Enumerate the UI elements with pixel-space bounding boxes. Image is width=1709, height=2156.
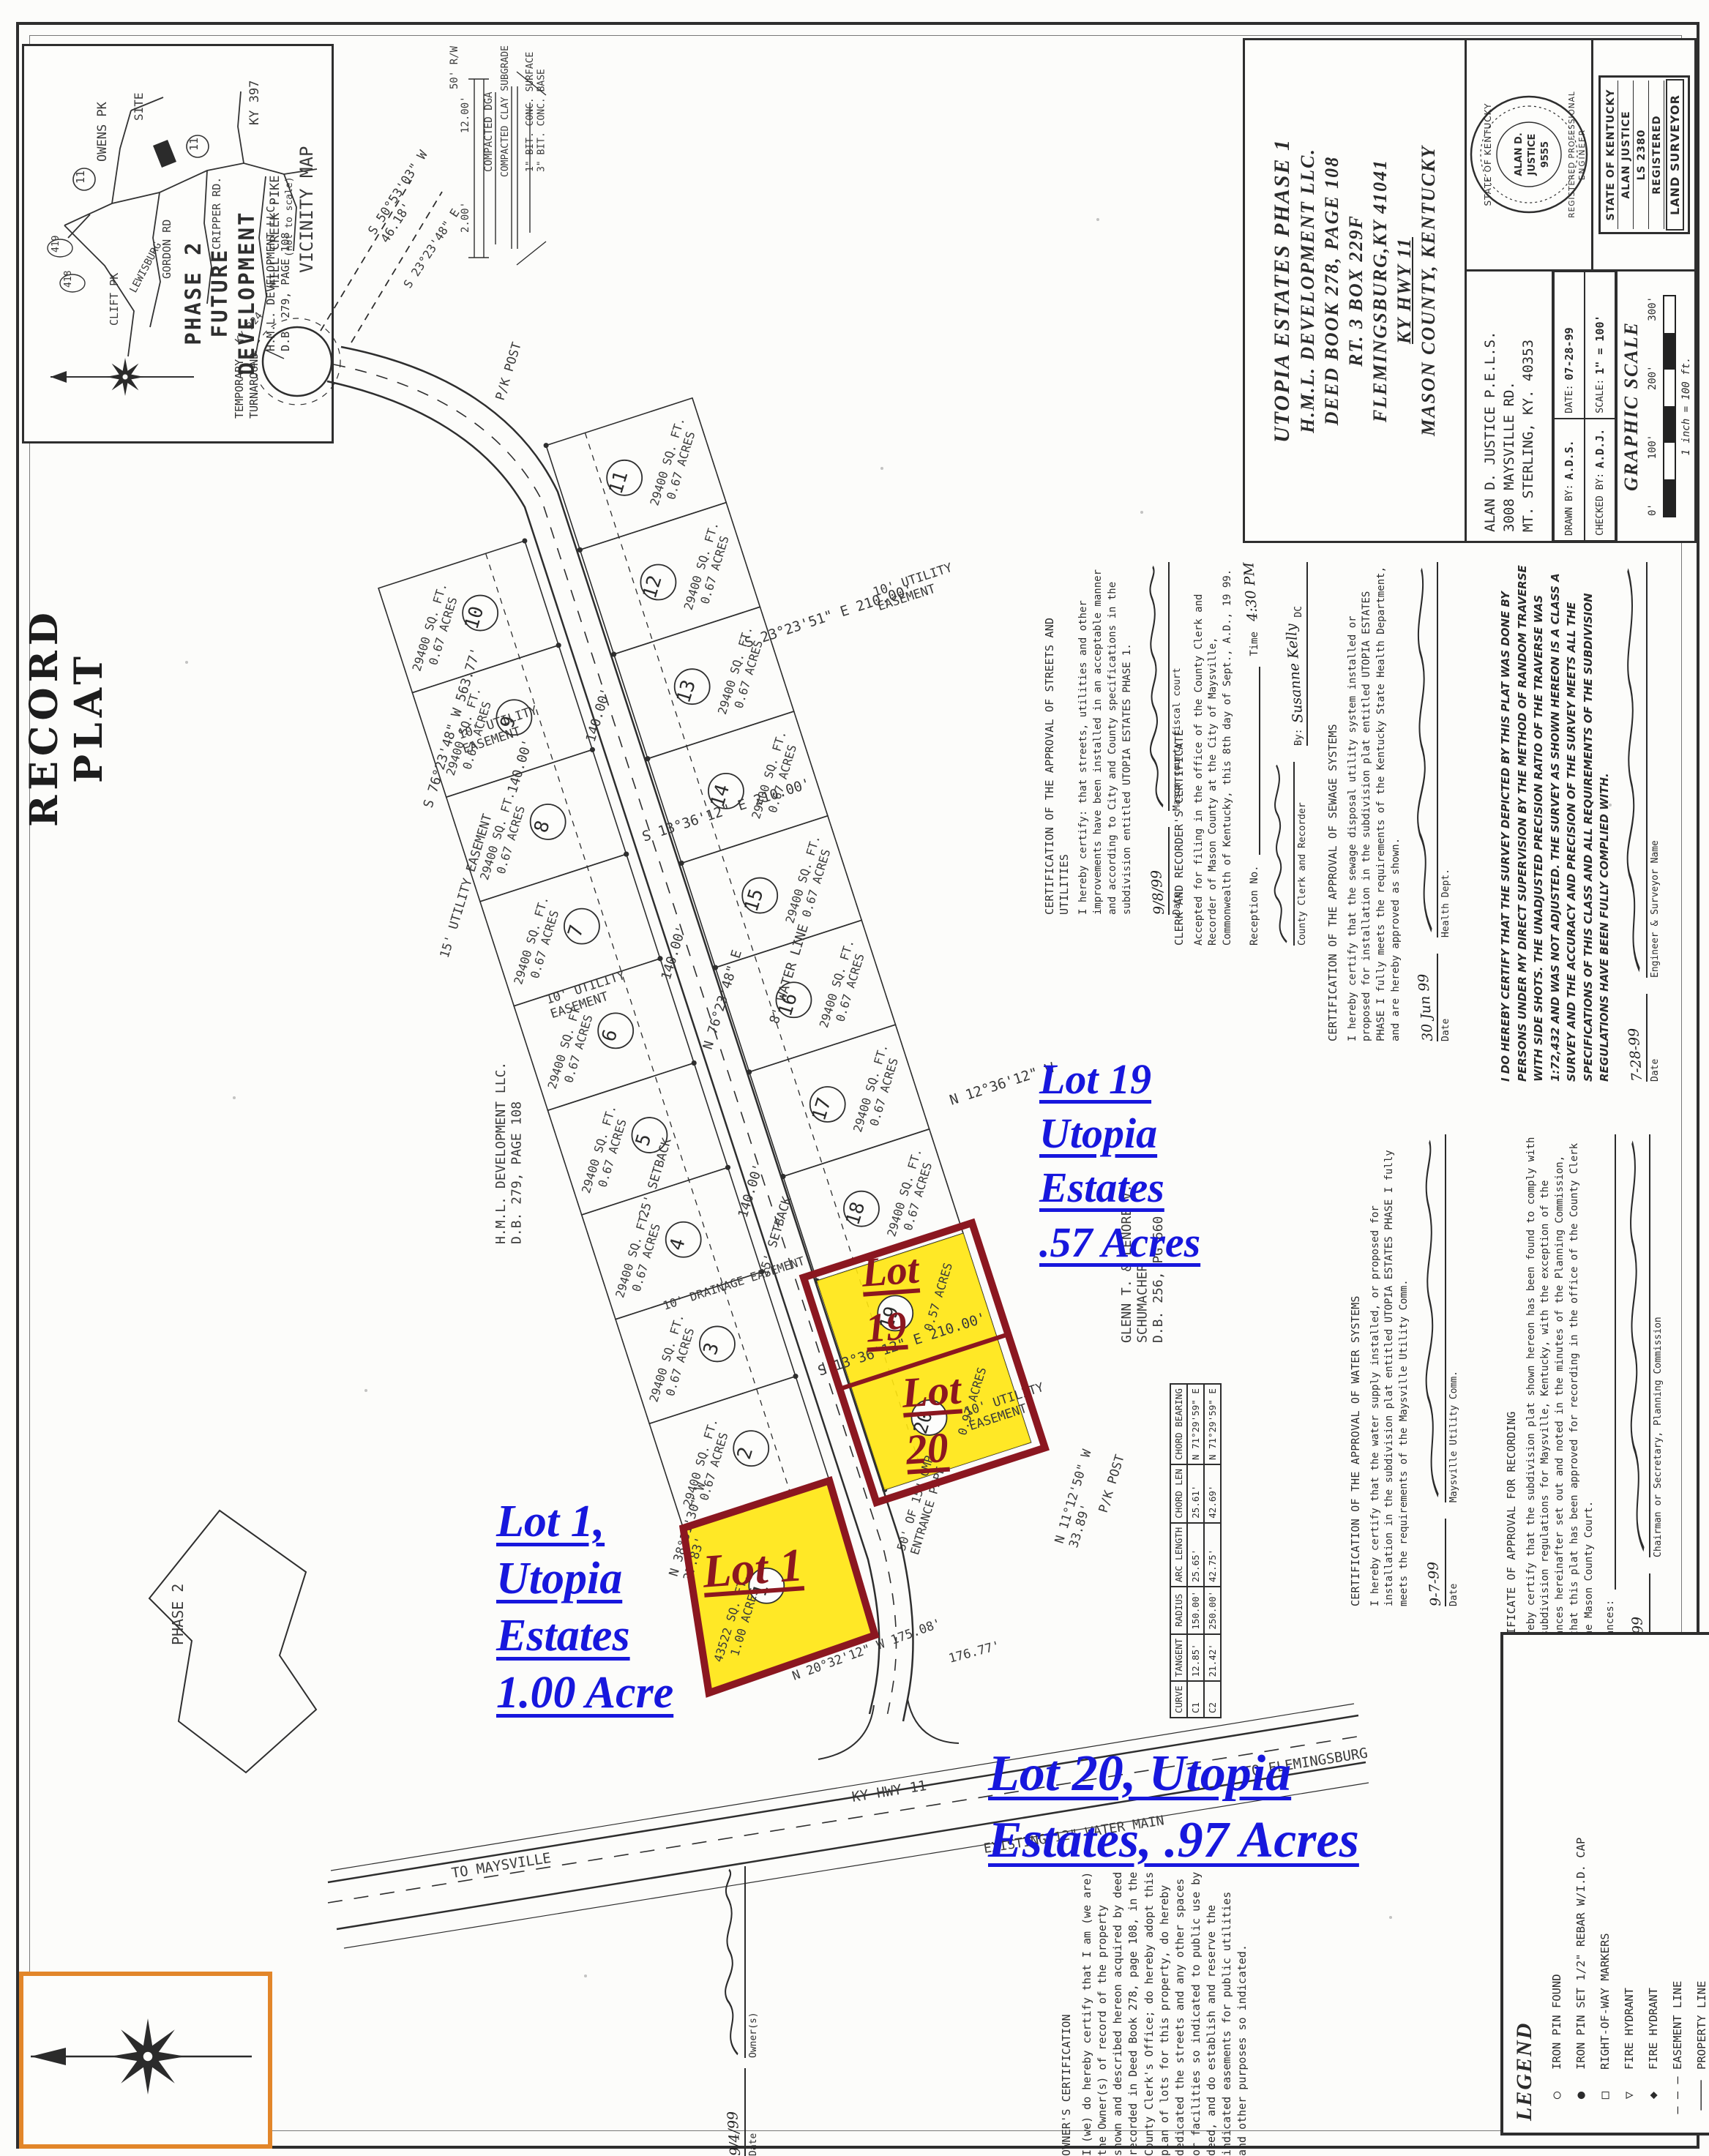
surveyor-stamp-line: LAND SURVEYOR: [1666, 79, 1684, 231]
legend-item: ▽FIRE HYDRANT: [1617, 1647, 1641, 2121]
legend-item: ◆FIRE HYDRANT: [1641, 1647, 1665, 2121]
cert-title: OWNER'S CERTIFICATION: [1060, 1866, 1074, 2156]
lot-area-label: 29400 SQ. FT.0.67 ACRES: [647, 416, 700, 512]
curve-table-cell: C2: [1204, 1681, 1221, 1718]
svg-text:ALAN D.: ALAN D.: [1514, 133, 1525, 177]
iron-pin-icon: [522, 539, 527, 544]
legend-label: IRON PIN SET 1/2" REBAR W/I.D. CAP: [1574, 1838, 1588, 2070]
graphic-scale-ticks: 0'100'200'300': [1647, 296, 1658, 516]
title-block-line: RT. 3 BOX 229F: [1345, 214, 1367, 367]
legend-items: ○IRON PIN FOUND●IRON PIN SET 1/2" REBAR …: [1544, 1647, 1709, 2121]
title-block-line: KY HWY 11: [1394, 237, 1416, 344]
signature-line: [1166, 562, 1170, 811]
graphic-scale-tick: 0': [1647, 504, 1658, 516]
compass-rose-icon: [23, 1976, 259, 2136]
signer-label: Chairman or Secretary, Planning Commissi…: [1653, 1134, 1664, 1557]
graphic-scale-bar: [1663, 295, 1676, 517]
surveyor-address-line: ALAN D. JUSTICE P.E.L.S.: [1482, 272, 1498, 532]
graphic-scale: GRAPHIC SCALE 0'100'200'300' 1 inch = 10…: [1618, 272, 1694, 541]
handwritten-signature: Susanne Kelly: [1283, 623, 1306, 723]
plat-annotation: 12.00': [460, 96, 471, 133]
iron-pin-icon: [713, 965, 718, 970]
curve-table-cell: N 71°29'59" E: [1187, 1384, 1204, 1464]
lot-area-label: 29400 SQ. FT.0.67 ACRES: [749, 729, 802, 825]
scan-speckle: [1140, 511, 1143, 514]
scan-speckle: [584, 1975, 587, 1977]
cert-recording: CERTIFICATE OF APPROVAL FOR RECORDING I …: [1505, 1134, 1697, 1661]
handwritten-time: 4:30 PM: [1241, 561, 1261, 621]
label-lot20: Lot 20: [900, 1360, 967, 1479]
svg-text:9555: 9555: [1540, 141, 1551, 168]
handwritten-date: 9/8/99: [1145, 826, 1167, 915]
lot-area-label: 29400 SQ. FT.0.67 ACRES: [681, 520, 735, 616]
plat-annotation: 10' UTILITYEASEMENT: [871, 561, 959, 614]
legend-title: LEGEND: [1512, 1647, 1537, 2121]
surveyor-stamp: STATE OF KENTUCKYALAN JUSTICELS 2380REGI…: [1593, 40, 1694, 269]
signature: [1421, 1134, 1443, 1502]
lot-area-label: 29400 SQ. FT.0.67 ACRES: [817, 937, 870, 1033]
signature-line: [1435, 562, 1438, 937]
date-label: Date: [1448, 1519, 1459, 1606]
svg-text:STATE OF KENTUCKY: STATE OF KENTUCKY: [1483, 103, 1493, 206]
cert-title: CERTIFICATION OF THE APPROVAL OF STREETS…: [1043, 562, 1072, 915]
cert-body: I hereby certify that the sewage disposa…: [1346, 562, 1405, 1041]
title-block-line: MASON COUNTY, KENTUCKY: [1418, 145, 1440, 436]
cert-title: CERTIFICATE OF APPROVAL FOR RECORDING: [1505, 1134, 1519, 1661]
handwritten-date: 9/4/99: [722, 2067, 744, 2156]
cert-surveyor: I DO HEREBY CERTIFY THAT THE SURVEY DEPI…: [1497, 562, 1697, 1082]
plat-annotation: 15' UTILITY EASEMENT: [438, 812, 496, 960]
surveyor-address: ALAN D. JUSTICE P.E.L.S.3008 MAYSVILLE R…: [1467, 272, 1554, 541]
engineer-seal-drawing: STATE OF KENTUCKY REGISTERED PROFESSIONA…: [1467, 45, 1590, 265]
lot-area-label: 29400 SQ. FT.0.67 ACRES: [884, 1147, 938, 1243]
compass-highlight-box: [19, 1972, 272, 2149]
svg-text:REGISTERED PROFESSIONAL: REGISTERED PROFESSIONAL: [1568, 91, 1577, 218]
legend-item: – – –EASEMENT LINE: [1665, 1647, 1689, 2121]
cert-title: CLERK AND RECORDER'S CERTIFICATE: [1173, 562, 1187, 946]
title-block-line: DEED BOOK 278, PAGE 108: [1321, 156, 1343, 425]
cert-body: I hereby certify: that streets, utilitie…: [1077, 562, 1135, 915]
lot-area-label: 29400 SQ. FT.0.67 ACRES: [646, 1312, 700, 1408]
lot-area-label: 29400 SQ. FT.0.67 ACRES: [579, 1104, 632, 1199]
iron-pin-icon: [793, 1374, 798, 1379]
curve-table-header: ARC LENGTH: [1170, 1523, 1187, 1587]
graphic-scale-note: 1 inch = 100 ft.: [1680, 357, 1692, 456]
road-line: [818, 1705, 874, 1759]
svg-text:JUSTICE: JUSTICE: [1527, 134, 1538, 176]
curve-table-header: CHORD BEARING: [1170, 1384, 1187, 1464]
curve-table-cell: 12.85': [1187, 1634, 1204, 1682]
legend-item: □RIGHT-OF-WAY MARKERS: [1593, 1647, 1617, 2121]
graphic-scale-tick: 200': [1647, 365, 1658, 390]
road-line: [908, 1699, 959, 1743]
compass-arrow-icon: [31, 2048, 66, 2065]
time-label: Time: [1249, 632, 1260, 656]
surveyor-address-line: MT. STERLING, KY. 40353: [1520, 272, 1536, 532]
engineer-seal: STATE OF KENTUCKY REGISTERED PROFESSIONA…: [1467, 40, 1593, 269]
handwritten-date: 7-28-99: [1623, 993, 1645, 1082]
date-cell: DATE:07-28-99: [1554, 272, 1585, 419]
legend-item: ○IRON PIN FOUND: [1544, 1647, 1568, 2121]
by-label: By:: [1293, 729, 1304, 746]
date-label: Date: [1650, 994, 1661, 1082]
iron-pin-icon: [556, 643, 561, 648]
cert-title: CERTIFICATION OF THE APPROVAL OF SEWAGE …: [1326, 562, 1341, 1041]
svg-text:ENGINEER: ENGINEER: [1578, 129, 1587, 180]
annotation-lot1: Lot 1, Utopia Estates 1.00 Acre: [496, 1493, 673, 1721]
cert-body: I (we) do hereby certify that I am (we a…: [1080, 1866, 1251, 2156]
iron-pin-set-icon: ●: [1574, 2070, 1588, 2121]
surveyor-stamp-line: REGISTERED: [1650, 81, 1664, 230]
signature: [1413, 562, 1435, 937]
iron-pin-icon: [544, 443, 549, 448]
plat-annotation: S 50°53'03" W46.18': [365, 148, 444, 246]
label-lot19: Lot 19: [860, 1242, 924, 1356]
fire-hydrant-icon: ▽: [1622, 2070, 1637, 2121]
signer-label: Maysville Utility Comm.: [1448, 1134, 1459, 1502]
signer-label: County Clerk and Recorder: [1297, 762, 1308, 946]
lot-area-label: 29400 SQ. FT.0.67 ACRES: [850, 1042, 904, 1138]
temporary-turnaround: [263, 327, 332, 396]
iron-pin-icon: [657, 956, 662, 961]
curve-table-cell: 25.65': [1187, 1523, 1204, 1587]
curve-table-cell: 25.61': [1187, 1464, 1204, 1523]
cert-streets: CERTIFICATION OF THE APPROVAL OF STREETS…: [1043, 562, 1171, 915]
date-label: Date: [1440, 954, 1451, 1041]
curve-table-cell: 250.00': [1204, 1587, 1221, 1634]
label-lot1: Lot 1: [700, 1533, 805, 1603]
scan-speckle: [233, 1096, 236, 1099]
compass-center: [143, 2051, 153, 2062]
dc-label: DC: [1293, 606, 1304, 618]
cert-water: CERTIFICATION OF THE APPROVAL OF WATER S…: [1349, 1134, 1470, 1606]
scan-speckle: [880, 467, 883, 470]
lot-area-label: 29400 SQ. FT.0.67 ACRES: [782, 834, 836, 929]
plat-annotation: H.M.L. DEVELOPMENT LLC.D.B. 279, PAGE 10…: [493, 1062, 525, 1244]
surveyor-stamp-line: LS 2380: [1635, 81, 1649, 230]
cert-body: I DO HEREBY CERTIFY THAT THE SURVEY DEPI…: [1497, 562, 1613, 1082]
cert-clerk: CLERK AND RECORDER'S CERTIFICATE Accepte…: [1173, 562, 1325, 946]
road-section-line: [517, 242, 546, 265]
legend-label: FIRE HYDRANT: [1623, 1988, 1636, 2070]
annotation-lot19: Lot 19 Utopia Estates .57 Acres: [1039, 1052, 1200, 1270]
curve-table-cell: 150.00': [1187, 1587, 1204, 1634]
plat-annotation: 140.00': [736, 1162, 766, 1220]
lot-area-label: 29400 SQ. FT.0.67 ACRES: [681, 1417, 734, 1513]
iron-pin-icon: [577, 547, 583, 553]
signature: [1622, 562, 1644, 978]
graphic-scale-title: GRAPHIC SCALE: [1620, 321, 1642, 491]
iron-pin-icon: [624, 852, 629, 857]
plat-annotation: 176.77': [947, 1639, 1001, 1666]
plat-annotation: 140.00': [505, 738, 536, 796]
iron-pin-icon: [725, 1165, 730, 1170]
surveyor-address-line: 3008 MAYSVILLE RD.: [1501, 272, 1517, 532]
cert-body: Accepted for filing in the office of the…: [1192, 562, 1236, 946]
right-of-way-marker-icon: □: [1598, 2070, 1612, 2121]
handwritten-date: 9-7-99: [1422, 1518, 1444, 1606]
curve-table-cell: 42.69': [1204, 1464, 1221, 1523]
cert-owner: OWNER'S CERTIFICATION I (we) do hereby c…: [1060, 1866, 1459, 2156]
lot-area-label: 29400 SQ. FT.0.67 ACRES: [410, 581, 463, 677]
signature-line: [742, 1866, 746, 2058]
legend-label: RIGHT-OF-WAY MARKERS: [1598, 1933, 1612, 2070]
owner-signature-block: 9/4/99 Date Owner(s): [708, 1866, 800, 2156]
fire-hydrant-icon: ◆: [1646, 2070, 1661, 2121]
curve-table-cell: 21.42': [1204, 1634, 1221, 1682]
legend-label: EASEMENT LINE: [1671, 1981, 1684, 2070]
date-label: Date: [748, 2068, 759, 2156]
plat-annotation: KY HWY 11: [850, 1778, 927, 1805]
signature-line: [1647, 1134, 1650, 1557]
plat-annotation: P/K POST: [1096, 1453, 1128, 1514]
graphic-scale-tick: 300': [1647, 296, 1658, 321]
iron-pin-icon: [590, 747, 595, 752]
iron-pin-icon: [645, 756, 650, 761]
curve-table: CURVETANGENTRADIUSARC LENGTHCHORD LENCHO…: [1170, 1383, 1222, 1718]
handwritten-date: 30 Jun 99: [1414, 953, 1436, 1041]
property-line-icon: ────: [1694, 2070, 1709, 2121]
temporary-turnaround-row: [254, 318, 340, 405]
iron-pin-icon: [611, 652, 616, 657]
blank-line: [1612, 1134, 1616, 1590]
curve-table-cell: 42.75': [1204, 1523, 1221, 1587]
plat-annotation: N 76°23'48" E: [700, 948, 745, 1052]
curve-table-header: CURVE: [1170, 1681, 1187, 1718]
checked-by-cell: CHECKED BY:A.D.J.: [1585, 419, 1615, 541]
lot-area-label: 29400 SQ. FT.0.67 ACRES: [613, 1208, 666, 1303]
surveyor-stamp-line: ALAN JUSTICE: [1620, 81, 1634, 230]
legend-label: IRON PIN FOUND: [1550, 1974, 1563, 2070]
scan-speckle: [364, 1389, 367, 1392]
leader-line: [265, 350, 284, 359]
drawing-info-table: DRAWN BY:A.D.S. DATE:07-28-99 CHECKED BY…: [1554, 272, 1618, 541]
graphic-scale-tick: 100': [1647, 435, 1658, 460]
signer-label: Engineer & Surveyor Name: [1650, 562, 1661, 978]
legend-item: ●IRON PIN SET 1/2" REBAR W/I.D. CAP: [1568, 1647, 1593, 2121]
curve-table-cell: N 71°29'59" E: [1204, 1384, 1221, 1464]
plat-annotation: 2.00': [460, 202, 471, 233]
iron-pin-icon: [747, 1069, 752, 1074]
iron-pin-icon: [780, 1174, 785, 1179]
annotation-lot20: Lot 20, Utopia Estates, .97 Acres: [988, 1740, 1359, 1874]
iron-pin-found-icon: ○: [1549, 2070, 1564, 2121]
legend-label: PROPERTY LINE: [1695, 1981, 1708, 2070]
plat-annotation: 50' R/W: [449, 45, 460, 89]
reception-label: Reception No.: [1249, 865, 1260, 946]
signature: [1144, 562, 1166, 811]
scan-speckle: [1096, 218, 1099, 221]
plat-annotation: S 23°23'48" E: [400, 206, 462, 291]
iron-pin-icon: [692, 1060, 697, 1066]
signature-line: [1443, 1134, 1446, 1502]
signature-line: [1291, 762, 1295, 946]
curve-table-block: CURVETANGENTRADIUSARC LENGTHCHORD LENCHO…: [1170, 1355, 1288, 1718]
lot-area-label: 29400 SQ. FT.0.67 ACRES: [511, 894, 564, 990]
plat-annotation: COMPACTED DGA: [483, 91, 495, 172]
title-block-project-lines: UTOPIA ESTATES PHASE 1H.M.L. DEVELOPMENT…: [1245, 40, 1467, 541]
plat-annotation: 1" BIT. CONC. SURFACE3" BIT. CONC. BASE: [525, 52, 547, 172]
signer-label: Owner(s): [748, 1866, 759, 2058]
curve-table-header: TANGENT: [1170, 1634, 1187, 1682]
signature: [1625, 1134, 1647, 1557]
title-block: UTOPIA ESTATES PHASE 1H.M.L. DEVELOPMENT…: [1243, 38, 1697, 543]
title-block-line: H.M.L. DEVELOPMENT LLC.: [1297, 148, 1319, 433]
surveyor-stamp-lines: STATE OF KENTUCKYALAN JUSTICELS 2380REGI…: [1598, 75, 1690, 235]
signer-label: Health Dept.: [1440, 562, 1451, 937]
cert-title: CERTIFICATION OF THE APPROVAL OF WATER S…: [1349, 1134, 1364, 1606]
blank-line: [1257, 667, 1260, 856]
record-plat-page: OWENS PKSITEKY 397MILL CREEK PIKEGORDON …: [0, 0, 1709, 2156]
title-block-line: UTOPIA ESTATES PHASE 1: [1270, 138, 1295, 443]
legend-label: FIRE HYDRANT: [1647, 1988, 1660, 2070]
scan-speckle: [185, 661, 188, 664]
cert-sewage: CERTIFICATION OF THE APPROVAL OF SEWAGE …: [1326, 562, 1496, 1041]
curve-table-header: RADIUS: [1170, 1587, 1187, 1634]
curve-table-cell: C1: [1187, 1681, 1204, 1718]
surveyor-stamp-line: STATE OF KENTUCKY: [1604, 81, 1618, 230]
scale-cell: SCALE:1" = 100': [1585, 272, 1615, 419]
signature: [1269, 762, 1291, 946]
title-block-line: FLEMINGSBURG,KY 41041: [1369, 159, 1391, 422]
drawn-by-cell: DRAWN BY:A.D.S.: [1554, 419, 1585, 541]
legend: LEGEND ○IRON PIN FOUND●IRON PIN SET 1/2"…: [1500, 1632, 1709, 2136]
signature-line: [1644, 562, 1648, 978]
iron-pin-icon: [679, 861, 684, 866]
plat-annotation: PHASE 2: [169, 1584, 187, 1645]
signature: [720, 1866, 742, 2058]
plat-annotation: P/K POST: [493, 340, 525, 402]
plat-annotation: COMPACTED CLAY SUBGRADE: [500, 45, 511, 177]
cert-body: I hereby certify that the subdivision pl…: [1525, 1134, 1597, 1661]
curve-table-header: CHORD LEN: [1170, 1464, 1187, 1523]
cert-body: I hereby certify that the water supply i…: [1369, 1134, 1413, 1606]
legend-item: ────PROPERTY LINE: [1689, 1647, 1709, 2121]
easement-line-icon: – – –: [1670, 2070, 1685, 2121]
plat-annotation: 140.00': [583, 686, 614, 744]
